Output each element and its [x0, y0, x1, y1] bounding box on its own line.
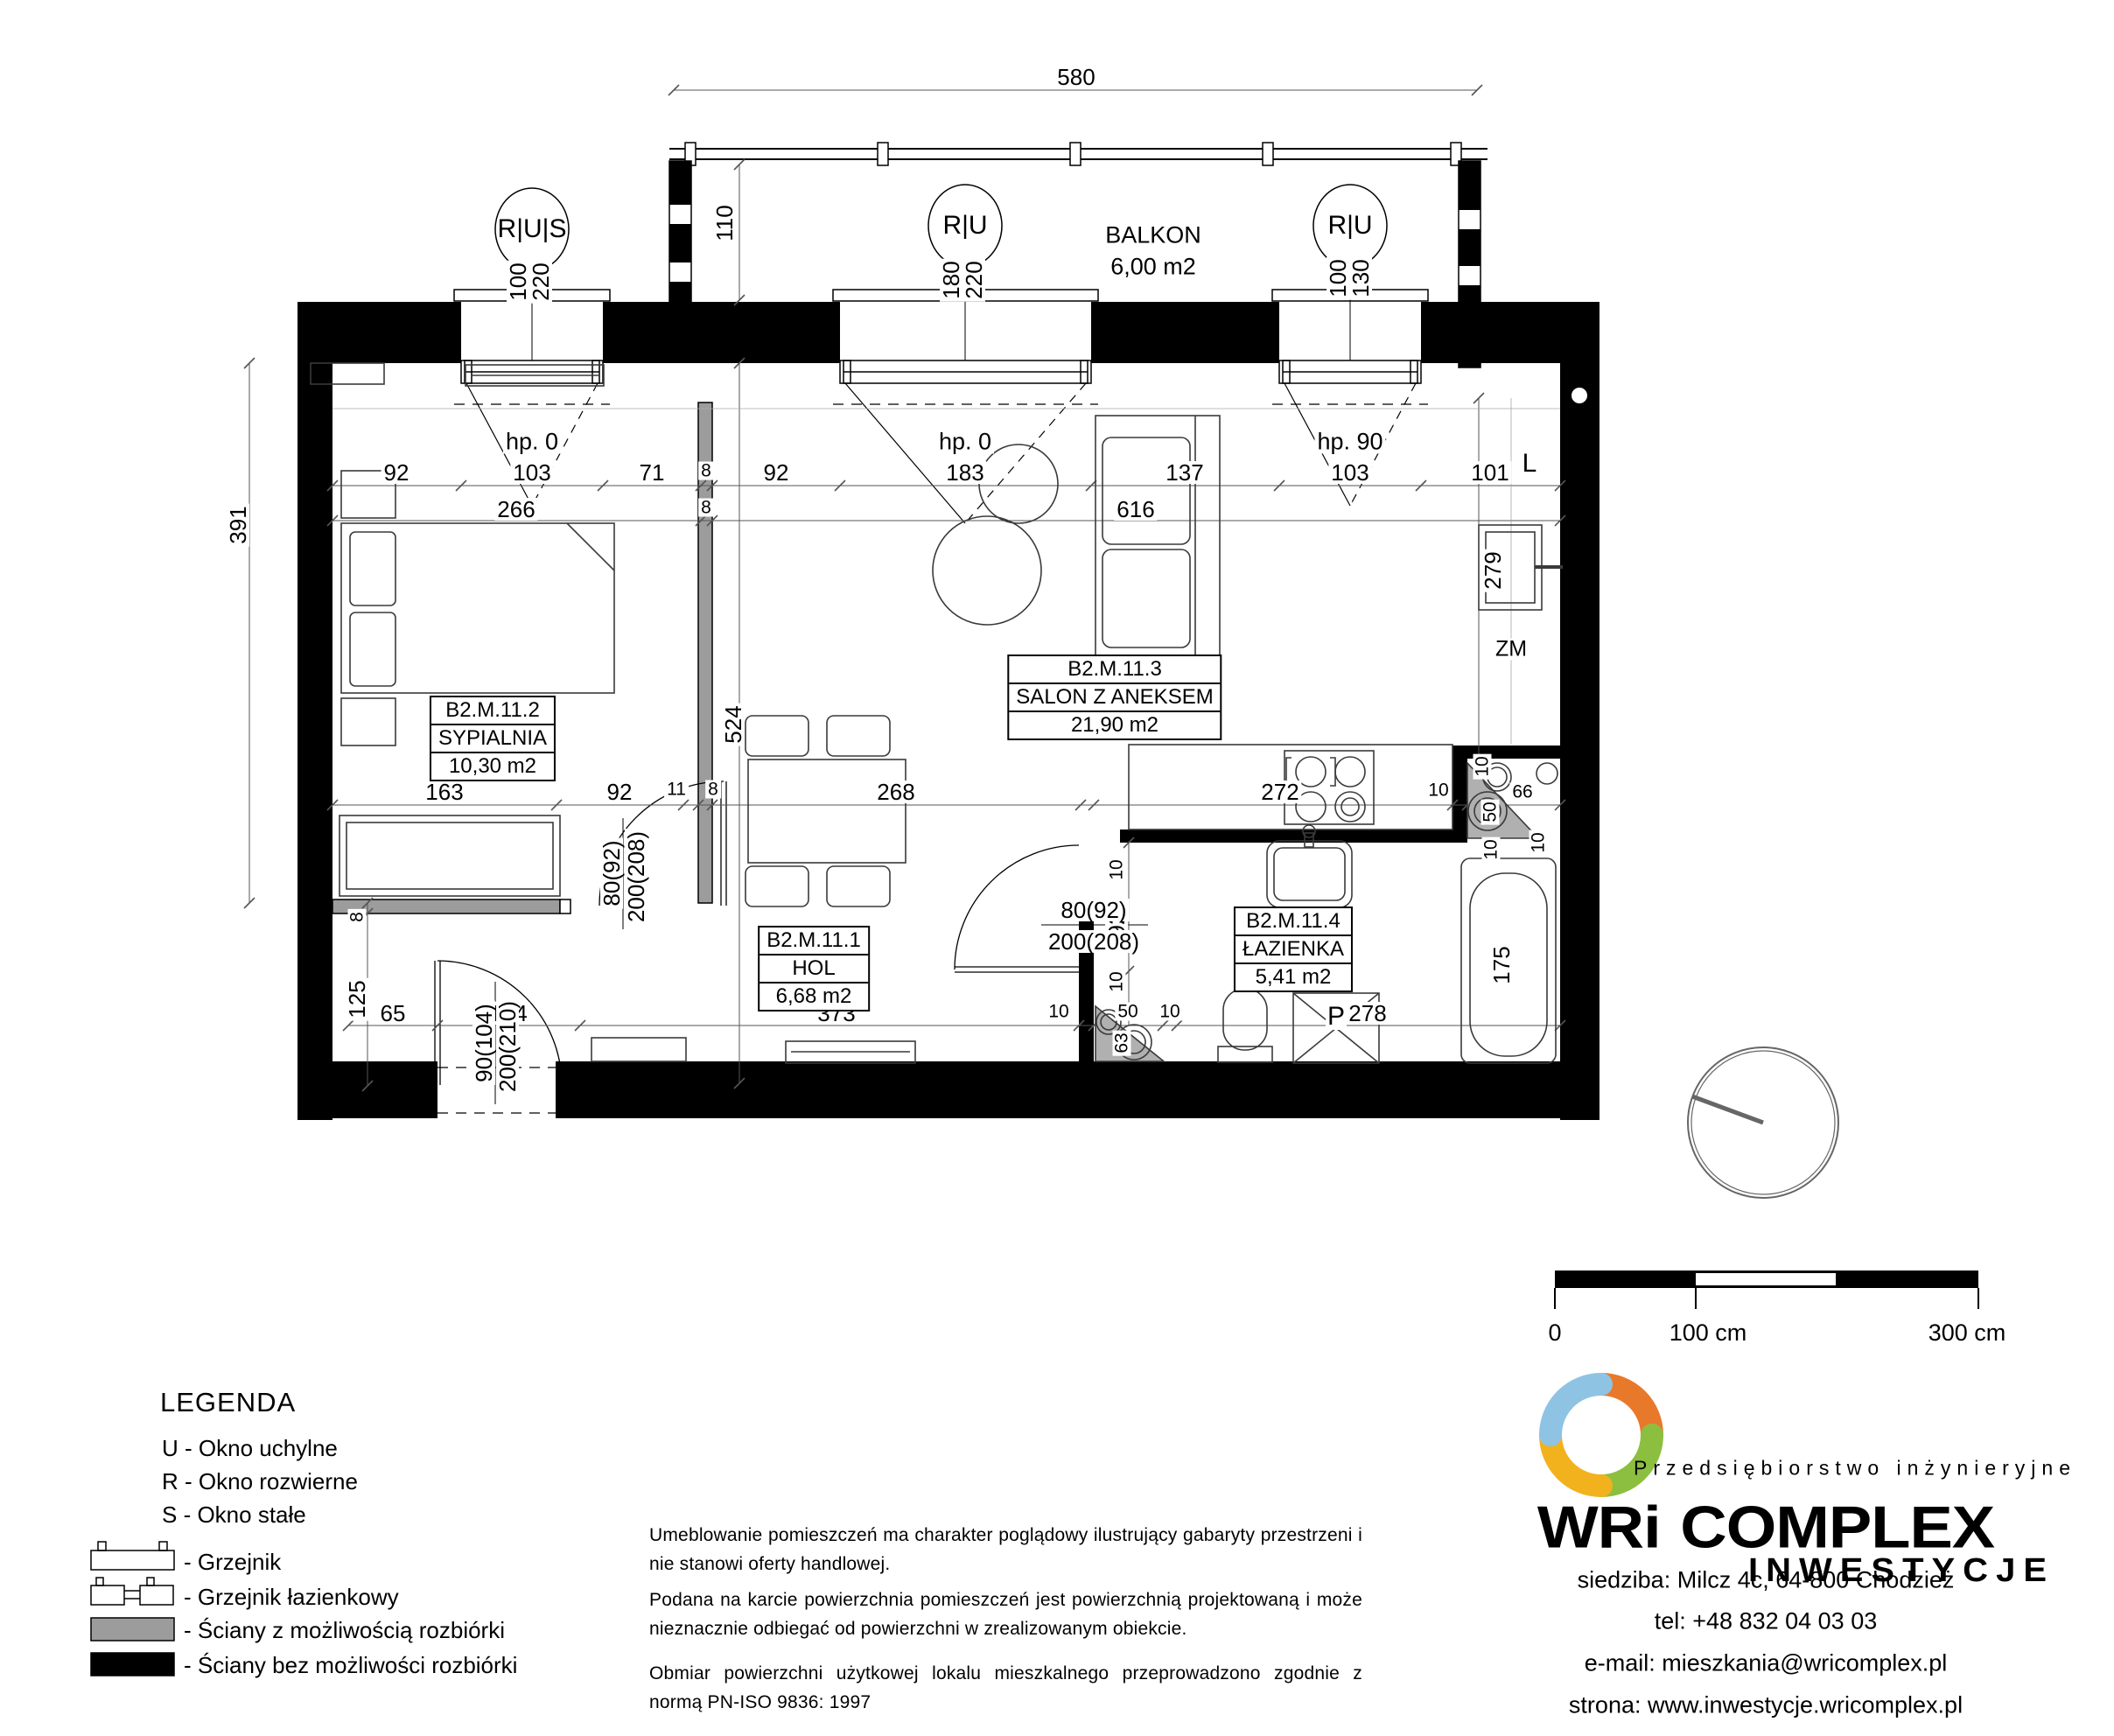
- door-entry-height: 200(210): [496, 998, 519, 1095]
- north-indicator: [1688, 1047, 1838, 1198]
- room-label-sypialnia: B2.M.11.2 SYPIALNIA 10,30 m2: [430, 696, 556, 781]
- room-id: B2.M.11.2: [431, 697, 554, 725]
- windows-symbols: [454, 185, 1428, 523]
- dim-label: 163: [423, 780, 465, 803]
- dim-label: 10: [1108, 857, 1126, 882]
- dim-label: 10: [1529, 829, 1548, 855]
- room-area: 5,41 m2: [1235, 964, 1351, 990]
- dim-label: 63: [1113, 1030, 1131, 1055]
- door-bathroom-width: 80(92): [1058, 899, 1129, 921]
- dim-label: 266: [494, 498, 537, 521]
- scale-label-100: 100 cm: [1669, 1319, 1747, 1347]
- floorplan-page: 580 110 BALKON 6,00 m2 R|U|S R|U R|U 100…: [0, 0, 2114, 1736]
- room-id: B2.M.11.1: [759, 927, 868, 955]
- dim-balcony-width: 580: [1054, 66, 1097, 88]
- scale-label-300: 300 cm: [1928, 1319, 2006, 1347]
- room-name: ŁAZIENKA: [1235, 936, 1351, 964]
- window2-dim-a: 180: [940, 258, 962, 301]
- window-tag-1: R|U|S: [498, 216, 567, 242]
- dim-label: 10: [1425, 781, 1451, 800]
- scale-bar: [1555, 1270, 1978, 1309]
- room-area: 10,30 m2: [431, 753, 554, 780]
- dim-label: 66: [1509, 783, 1535, 801]
- room-area: 6,68 m2: [759, 983, 868, 1010]
- door-bedroom-width: 80(92): [600, 837, 623, 908]
- dim-label: 50: [1115, 1003, 1140, 1021]
- dishwasher-label: ZM: [1494, 639, 1529, 661]
- window1-dim-a: 100: [507, 260, 529, 303]
- brand-website: strona: www.inwestycje.wricomplex.pl: [1569, 1692, 1963, 1719]
- note-norm: Obmiar powierzchni użytkowej lokalu mies…: [649, 1659, 1362, 1717]
- balcony-label: BALKON 6,00 m2: [1105, 220, 1201, 283]
- dim-label: 137: [1163, 461, 1206, 484]
- dim-label: 278: [1346, 1002, 1389, 1025]
- dim-label: 183: [943, 461, 986, 484]
- dim-label: 103: [1328, 461, 1371, 484]
- dim-label: 391: [227, 503, 249, 546]
- window3-dim-b: 130: [1349, 256, 1372, 299]
- room-area: 21,90 m2: [1009, 712, 1220, 738]
- legend-item-radiator: - Grzejnik: [184, 1549, 281, 1576]
- brand-phone: tel: +48 832 04 03 03: [1655, 1608, 1877, 1635]
- window1-dim-b: 220: [529, 260, 552, 303]
- dim-label: 616: [1114, 498, 1157, 521]
- window3-hp: hp. 90: [1314, 430, 1385, 454]
- door-entry-width: 90(104): [472, 1001, 495, 1085]
- dim-label: 65: [378, 1002, 409, 1025]
- brand-name-complex: COMPLEX: [1680, 1494, 1994, 1560]
- legend-symbols: [91, 1542, 174, 1676]
- room-label-hol: B2.M.11.1 HOL 6,68 m2: [758, 926, 870, 1011]
- dim-label: 272: [1258, 780, 1301, 803]
- door-bedroom-height: 200(208): [625, 829, 647, 925]
- legend-item-gray-walls: - Ściany z możliwością rozbiórki: [184, 1617, 505, 1644]
- dim-label: 125: [346, 977, 368, 1020]
- window-tag-2: R|U: [942, 213, 987, 239]
- door-bathroom-height: 200(208): [1046, 930, 1142, 953]
- dim-label: 92: [381, 461, 412, 484]
- dim-label: 10: [1108, 969, 1126, 994]
- window1-hp: hp. 0: [503, 430, 561, 454]
- dim-label: 268: [874, 780, 917, 803]
- dim-label: 8: [348, 909, 367, 925]
- window3-dim-a: 100: [1326, 256, 1349, 299]
- legend-title: LEGENDA: [160, 1387, 296, 1418]
- dim-label: 279: [1481, 549, 1504, 591]
- brand-wordmark: WRi COMPLEX: [1537, 1493, 1994, 1561]
- note-area: Podana na karcie powierzchnia pomieszcze…: [649, 1585, 1362, 1643]
- dim-label: 175: [1490, 943, 1513, 986]
- dim-label: 8: [698, 462, 714, 480]
- dim-balcony-depth: 110: [713, 202, 736, 243]
- legend-item-bath-radiator: - Grzejnik łazienkowy: [184, 1584, 399, 1611]
- brand-name-wri: WRi: [1537, 1494, 1661, 1560]
- wall-dot: [1571, 388, 1587, 403]
- note-furnishing: Umeblowanie pomieszczeń ma charakter pog…: [649, 1521, 1362, 1578]
- dim-label: 71: [637, 461, 668, 484]
- dim-label: 10: [1482, 836, 1501, 862]
- window-tag-3: R|U: [1327, 213, 1372, 239]
- room-name: SYPIALNIA: [431, 725, 554, 753]
- dim-label: 92: [605, 780, 635, 803]
- dim-label: 8: [705, 780, 721, 799]
- brand-address: siedziba: Milcz 4c, 64-800 Chodzież: [1578, 1567, 1955, 1594]
- room-id: B2.M.11.4: [1235, 908, 1351, 936]
- window2-dim-b: 220: [962, 258, 985, 301]
- dim-label: 10: [1473, 753, 1492, 779]
- scale-label-0: 0: [1548, 1319, 1561, 1347]
- dim-label: 10: [1157, 1003, 1182, 1021]
- dim-label: 103: [510, 461, 553, 484]
- dim-label: 92: [761, 461, 792, 484]
- dim-label: 11: [664, 780, 689, 799]
- brand-email: e-mail: mieszkania@wricomplex.pl: [1585, 1650, 1948, 1677]
- balcony-area: 6,00 m2: [1110, 254, 1196, 280]
- washer-label: P: [1326, 1004, 1347, 1030]
- dim-label: 524: [722, 703, 745, 745]
- dim-label: 10: [1046, 1003, 1071, 1021]
- balcony-name: BALKON: [1105, 222, 1201, 248]
- legend-item-u: U - Okno uchylne: [162, 1435, 338, 1462]
- legend-item-black-walls: - Ściany bez możliwości rozbiórki: [184, 1652, 517, 1679]
- legend-item-s: S - Okno stałe: [162, 1501, 306, 1529]
- dim-label: 101: [1468, 461, 1511, 484]
- room-id: B2.M.11.3: [1009, 656, 1220, 684]
- legend-item-r: R - Okno rozwierne: [162, 1468, 358, 1495]
- window2-hp: hp. 0: [936, 430, 994, 454]
- dim-label: 8: [698, 499, 714, 517]
- brand-tagline: Przedsiębiorstwo inżynieryjne: [1634, 1457, 2076, 1480]
- room-label-lazienka: B2.M.11.4 ŁAZIENKA 5,41 m2: [1234, 906, 1353, 992]
- fridge-label: L: [1520, 451, 1540, 477]
- room-label-salon: B2.M.11.3 SALON Z ANEKSEM 21,90 m2: [1007, 654, 1221, 740]
- dim-label: 50: [1481, 799, 1500, 824]
- room-name: HOL: [759, 955, 868, 983]
- room-name: SALON Z ANEKSEM: [1009, 684, 1220, 712]
